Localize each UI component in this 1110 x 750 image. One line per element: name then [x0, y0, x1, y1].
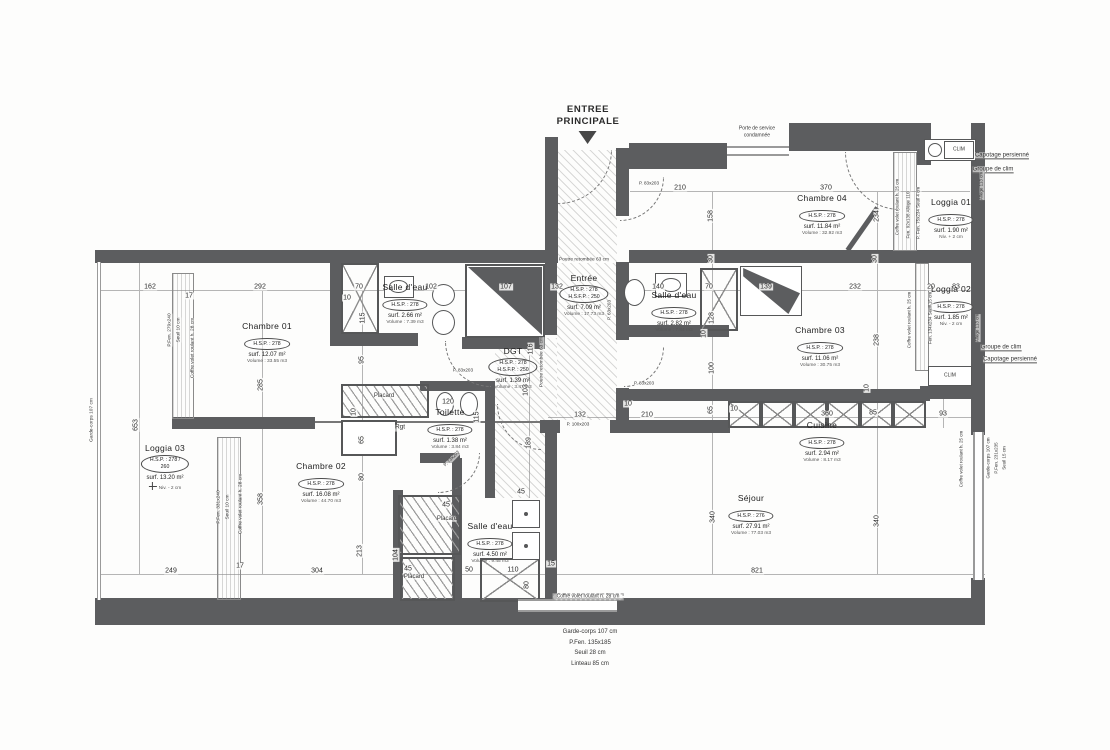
- ceiling-height-badge: H.S.P. : 278H.S.F.P. : 250: [488, 358, 537, 376]
- room-label-chambre-02: Chambre 02H.S.P. : 278surf. 16.08 m²Volu…: [296, 462, 346, 505]
- annotation-fen-134x234-seuil-15-cm: Fen. 134x234 Seuil 15 cm: [929, 292, 934, 344]
- room-label-loggia-02: Loggia 02H.S.P. : 278surf. 1.85 m²Niv. -…: [928, 285, 973, 328]
- dim-120: 120: [441, 399, 455, 406]
- room-volume: Volume : 3.47 m3: [488, 385, 537, 391]
- room-surface: surf. 2.66 m²: [382, 313, 427, 320]
- dim-80: 80: [524, 580, 531, 590]
- ceiling-height-badge: H.S.P. : 278: [382, 299, 427, 311]
- annotation-p-fen-279x240: P.Fen. 279x240: [167, 313, 172, 346]
- room-name: DGT: [488, 347, 537, 357]
- annotation-poutre-retomb-e-63-cm: Poutre retombée 63 cm: [539, 337, 544, 387]
- room-surface: surf. 2.94 m²: [799, 451, 844, 458]
- room-surface: surf. 11.84 m²: [797, 224, 847, 231]
- dim-210: 210: [673, 185, 687, 192]
- room-volume: Volume : 44.70 m3: [296, 499, 346, 505]
- dim-50: 50: [464, 567, 474, 574]
- dim-821: 821: [750, 568, 764, 575]
- door-arc: [438, 453, 480, 493]
- room-name: Chambre 03: [795, 326, 845, 336]
- dim-10: 10: [351, 407, 358, 417]
- room-name: Séjour: [728, 494, 773, 504]
- room-label-cuisine: CuisineH.S.P. : 278surf. 2.94 m²Volume :…: [799, 421, 844, 464]
- room-volume: Volume : 3.84 m3: [427, 445, 472, 451]
- dim-107: 107: [499, 284, 513, 291]
- dim-115: 115: [360, 311, 367, 324]
- dim-162: 162: [143, 284, 157, 291]
- room-surface: surf. 1.85 m²: [928, 315, 973, 322]
- north-arrow-icon: [149, 482, 157, 490]
- floor-plan: ENTREE PRINCIPALE Garde-corps 107 cmP.Fe…: [0, 0, 1110, 750]
- dim-128: 128: [709, 311, 716, 325]
- annotation-p-100x203: P. 100x203: [567, 423, 590, 428]
- room-surface: surf. 7.09 m²: [559, 305, 608, 312]
- dim-370: 370: [819, 185, 833, 192]
- annotation-seuil-15-cm: Seuil 15 cm: [1003, 446, 1008, 470]
- annotation-garde-corps-107-cm: Garde-corps 107 cm: [987, 437, 992, 478]
- loggia-guardrail: [97, 262, 101, 600]
- dim-70: 70: [354, 284, 364, 291]
- dim-210: 210: [640, 412, 654, 419]
- room-volume: Niv. + 2 cm: [928, 235, 973, 241]
- bottom-window-notes: Garde-corps 107 cmP.Fen. 135x185Seuil 28…: [563, 627, 618, 669]
- dim-93: 93: [938, 411, 948, 418]
- sink-drain: [524, 544, 528, 548]
- annotation-all-ge-113-cm: Allège 113 cm: [976, 314, 981, 342]
- annotation-groupe-de-clim: Groupe de clim: [981, 344, 1022, 351]
- room-name: Chambre 04: [797, 194, 847, 204]
- entrance-arrow-icon: [579, 131, 597, 144]
- dim-132: 132: [573, 412, 587, 419]
- room-volume: Niv. - 2 cm: [141, 482, 189, 492]
- dim-70: 70: [704, 284, 714, 291]
- annotation-coffre-volet-roulant-h-28-cm: Coffre volet roulant h. 28 cm: [190, 318, 195, 378]
- bottom-note-line: Garde-corps 107 cm: [563, 627, 618, 638]
- wall: [95, 250, 545, 263]
- wall: [545, 430, 557, 600]
- dim-158: 158: [708, 209, 715, 223]
- annotation-coffre-volet-roulant-h-28-cm: Coffre volet roulant h. 28 cm: [553, 593, 624, 600]
- room-label-salle-d-eau-3: Salle d'eauH.S.P. : 278surf. 4.50 m²Volu…: [467, 522, 512, 565]
- dim-45: 45: [403, 566, 413, 573]
- ceiling-height-badge: H.S.P. : 278: [427, 424, 472, 436]
- wall: [330, 262, 341, 342]
- wall: [629, 143, 727, 169]
- dim-95: 95: [359, 355, 366, 365]
- annotation-condamn-e: condamnée: [744, 133, 770, 138]
- room-label-chambre-03: Chambre 03H.S.P. : 278surf. 11.06 m²Volu…: [795, 326, 845, 369]
- porte-de-service-opening: [727, 146, 789, 156]
- room-volume: Volume : 30.75 m3: [795, 363, 845, 369]
- door-arc: [845, 152, 900, 210]
- kitchen-unit-cell: [893, 401, 926, 428]
- dim-358: 358: [258, 492, 265, 506]
- dim-340: 340: [710, 510, 717, 524]
- annotation-rgt: Rgt: [395, 425, 405, 432]
- wall: [617, 389, 930, 401]
- room-name: Salle d'eau: [651, 291, 696, 301]
- room-surface: surf. 1.39 m²: [488, 378, 537, 385]
- room-surface: surf. 4.50 m²: [467, 552, 512, 559]
- room-name: Chambre 01: [242, 322, 292, 332]
- annotation-p-63x203: P. 63x203: [608, 300, 613, 320]
- dim-360: 360: [820, 411, 834, 418]
- room-name: Loggia 03: [141, 444, 189, 454]
- entrance-line2: PRINCIPALE: [557, 116, 620, 128]
- ceiling-height-badge: H.S.P. : 278: [797, 342, 842, 354]
- room-volume: Volume : 8.17 m3: [799, 458, 844, 464]
- dim-104: 104: [393, 548, 400, 562]
- annotation-p-83x203: P. 83x203: [634, 382, 654, 387]
- wall: [330, 333, 418, 346]
- dim-10: 10: [342, 295, 352, 302]
- window-opening: [973, 432, 984, 580]
- dim-238: 238: [874, 333, 881, 347]
- annotation-coffre-volet-roulant-h-25-cm: Coffre volet roulant h. 25 cm: [960, 431, 965, 487]
- annotation-clim: CLIM: [953, 147, 965, 152]
- entrance-label: ENTREE PRINCIPALE: [557, 104, 620, 144]
- dim-10: 10: [623, 401, 633, 408]
- room-label-entree: EntréeH.S.P. : 278H.S.F.P. : 250surf. 7.…: [559, 274, 608, 318]
- room-name: Toilette: [427, 408, 472, 418]
- clim-fan-icon: [928, 143, 942, 157]
- dim-234: 234: [874, 209, 881, 223]
- room-surface: surf. 1.90 m²: [928, 228, 973, 235]
- wall: [545, 262, 557, 335]
- window-opening: [518, 599, 617, 612]
- room-surface: surf. 13.20 m²: [141, 475, 189, 482]
- room-volume: Volume : 9.45 m3: [467, 559, 512, 565]
- room-volume: Niv. - 2 cm: [928, 322, 973, 328]
- annotation-coffre-volet-roulant-h-25-cm: Coffre volet roulant h. 25 cm: [908, 292, 913, 348]
- annotation-placard: Placard: [374, 393, 394, 399]
- dim-45: 45: [441, 502, 451, 509]
- dim-232: 232: [848, 284, 862, 291]
- room-label-loggia-01: Loggia 01H.S.P. : 278surf. 1.90 m²Niv. +…: [928, 198, 973, 241]
- ceiling-height-badge: H.S.P. : 278: [928, 301, 973, 313]
- dim-17: 17: [184, 293, 194, 300]
- dim-45: 45: [516, 489, 526, 496]
- dim-85: 85: [868, 410, 878, 417]
- wall: [629, 250, 971, 263]
- room-label-salle-d-eau-2: Salle d'eauH.S.P. : 278surf. 2.82 m²Volu…: [651, 291, 696, 334]
- room-label-sejour: SéjourH.S.P. : 276surf. 27.91 m²Volume :…: [728, 494, 773, 537]
- annotation-placard: Placard: [437, 516, 457, 522]
- dim-249: 249: [164, 568, 178, 575]
- wall: [485, 381, 495, 498]
- annotation-poutre-retomb-e-63-cm: Poutre retombée 63 cm: [559, 257, 609, 262]
- shower-tray: [480, 558, 540, 602]
- room-label-toilette: ToiletteH.S.P. : 278surf. 1.38 m²Volume …: [427, 408, 472, 451]
- dim-10: 10: [729, 406, 739, 413]
- annotation-p-fen-231x235: P.Fen. 231x235: [995, 442, 1000, 473]
- bottom-note-line: P.Fen. 135x185: [563, 638, 618, 649]
- dim-110: 110: [506, 567, 519, 574]
- dim-100: 100: [709, 361, 716, 375]
- annotation-p-fen-331x240: P.Fen. 331x240: [216, 490, 221, 523]
- dim-115: 115: [474, 410, 481, 423]
- room-name: Loggia 02: [928, 285, 973, 295]
- dim-65: 65: [708, 405, 715, 415]
- ceiling-height-badge: H.S.P. : 278: [467, 538, 512, 550]
- bottom-note-line: Linteau 85 cm: [563, 659, 618, 670]
- annotation-capotage-persienn: Capotage persienné: [975, 152, 1029, 159]
- dim-139: 139: [759, 284, 773, 291]
- dim-189: 189: [526, 436, 533, 450]
- ceiling-height-badge: H.S.P. : 278: [651, 307, 696, 319]
- room-surface: surf. 1.38 m²: [427, 438, 472, 445]
- annotation-fen-92x138-all-ge-110: Fen. 92x138 Allège 110: [907, 192, 912, 239]
- dim-80: 80: [359, 472, 366, 482]
- annotation-seuil-10-cm: Seuil 10 cm: [176, 317, 181, 342]
- ceiling-height-badge: H.S.P. : 278H.S.F.P. : 250: [559, 285, 608, 303]
- room-label-chambre-01: Chambre 01H.S.P. : 278surf. 12.07 m²Volu…: [242, 322, 292, 365]
- annotation-coffre-volet-roulant-h-28-cm: Coffre volet roulant h. 28 cm: [238, 474, 243, 534]
- annotation-p-83x203: P. 83x203: [639, 182, 659, 187]
- wall: [789, 123, 930, 151]
- dim-292: 292: [253, 284, 267, 291]
- ceiling-height-badge: H.S.P. : 278: [928, 214, 973, 226]
- dim-213: 213: [357, 544, 364, 558]
- annotation-coffre-volet-roulant-h-25-cm: Coffre volet roulant h. 25 cm: [896, 179, 901, 235]
- dim-30: 30: [872, 254, 879, 264]
- room-volume: Volume : 17.73 m3: [559, 312, 608, 318]
- room-surface: surf. 12.07 m²: [242, 352, 292, 359]
- room-volume: Volume : 32.92 m3: [797, 231, 847, 237]
- toilet: [624, 279, 645, 306]
- room-name: Loggia 01: [928, 198, 973, 208]
- dim-30: 30: [708, 254, 715, 264]
- ceiling-height-badge: H.S.P. : 278: [799, 437, 844, 449]
- annotation-placard: Placard: [404, 574, 424, 580]
- dim-10: 10: [864, 383, 871, 393]
- room-surface: surf. 27.91 m²: [728, 524, 773, 531]
- room-label-loggia-03: Loggia 03H.S.P. : 278 /260surf. 13.20 m²…: [141, 444, 189, 492]
- room-label-chambre-04: Chambre 04H.S.P. : 278surf. 11.84 m²Volu…: [797, 194, 847, 237]
- bottom-note-line: Seuil 28 cm: [563, 648, 618, 659]
- dim-304: 304: [310, 568, 324, 575]
- sink-drain: [524, 512, 528, 516]
- room-volume: Volume : 7.84 m3: [651, 328, 696, 334]
- ceiling-height-badge: H.S.P. : 278: [799, 210, 844, 222]
- dim-653: 653: [133, 418, 140, 432]
- room-label-salle-d-eau-1: Salle d'eauH.S.P. : 278surf. 2.66 m²Volu…: [382, 283, 427, 326]
- entrance-line1: ENTREE: [557, 104, 620, 116]
- room-volume: Volume : 77.03 m3: [728, 531, 773, 537]
- room-name: Entrée: [559, 274, 608, 284]
- dim-65: 65: [359, 435, 366, 445]
- ceiling-height-badge: H.S.P. : 278: [298, 478, 343, 490]
- ceiling-height-badge: H.S.P. : 276: [728, 510, 773, 522]
- wall: [545, 137, 558, 263]
- ceiling-height-badge: H.S.P. : 278: [244, 338, 289, 350]
- room-name: Chambre 02: [296, 462, 346, 472]
- room-name: Salle d'eau: [467, 522, 512, 532]
- annotation-clim: CLIM: [944, 373, 956, 378]
- room-label-dgt: DGTH.S.P. : 278H.S.F.P. : 250surf. 1.39 …: [488, 347, 537, 391]
- annotation-p-83x203: P. 83x203: [453, 369, 473, 374]
- room-surface: surf. 2.82 m²: [651, 321, 696, 328]
- dim-340: 340: [874, 514, 881, 528]
- annotation-garde-corps-107-cm: Garde-corps 107 cm: [89, 398, 94, 442]
- room-volume: Volume : 7.39 m3: [382, 320, 427, 326]
- wall: [920, 386, 985, 399]
- room-name: Cuisine: [799, 421, 844, 431]
- wall: [610, 420, 730, 433]
- dim-10: 10: [701, 329, 708, 339]
- ceiling-height-badge: H.S.P. : 278 /260: [141, 455, 189, 473]
- kitchen-unit-cell: [761, 401, 794, 428]
- closet: [700, 268, 738, 331]
- wardrobe: [398, 495, 461, 555]
- dim-285: 285: [258, 378, 265, 392]
- annotation-seuil-10-cm: Seuil 10 cm: [225, 494, 230, 519]
- room-volume: Volume : 33.55 m3: [242, 359, 292, 365]
- dim-17: 17: [235, 563, 245, 570]
- toilet: [432, 310, 455, 335]
- room-name: Salle d'eau: [382, 283, 427, 293]
- annotation-p-fen-75x234-seuil-4-cm: P. Fen. 75x234 Seuil 4 cm: [917, 187, 922, 239]
- room-surface: surf. 16.08 m²: [296, 492, 346, 499]
- room-surface: surf. 11.06 m²: [795, 356, 845, 363]
- annotation-all-ge-113-cm: Allège 113 cm: [980, 172, 985, 200]
- annotation-porte-de-service: Porte de service: [739, 126, 775, 131]
- annotation-capotage-persienn: Capotage persienné: [983, 356, 1037, 363]
- storage-rgt: [341, 420, 397, 456]
- dim-15: 15: [546, 561, 556, 568]
